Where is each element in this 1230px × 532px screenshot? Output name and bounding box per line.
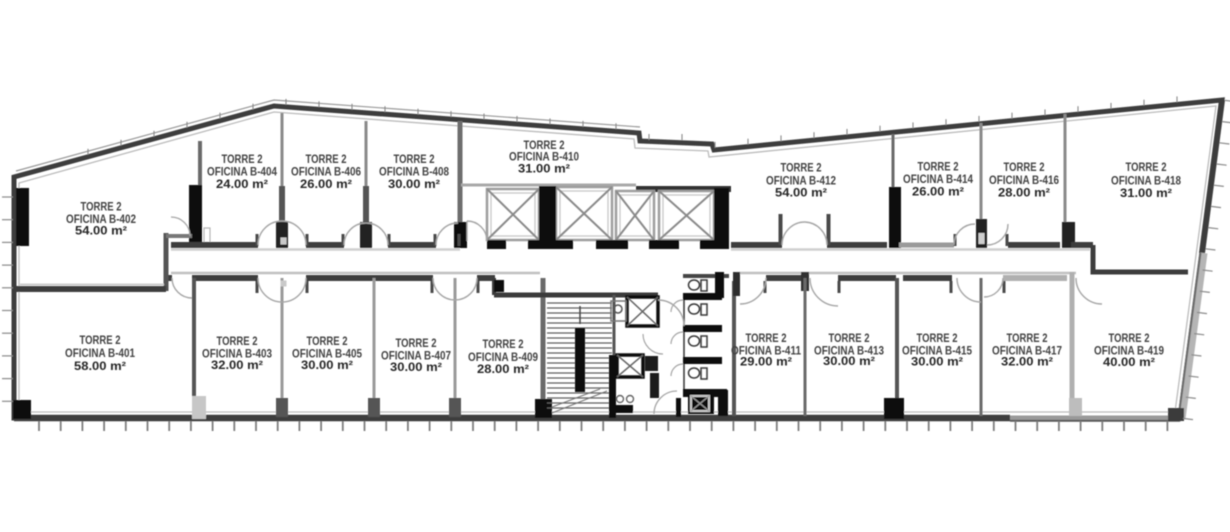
svg-text:31.00 m²: 31.00 m²: [518, 162, 570, 176]
svg-text:30.00 m²: 30.00 m²: [388, 177, 440, 191]
svg-text:30.00 m²: 30.00 m²: [823, 354, 875, 368]
svg-text:24.00 m²: 24.00 m²: [216, 177, 268, 191]
svg-text:32.00 m²: 32.00 m²: [211, 358, 263, 372]
svg-text:32.00 m²: 32.00 m²: [1001, 355, 1053, 369]
svg-text:TORRE 2: TORRE 2: [1126, 160, 1167, 174]
svg-text:26.00 m²: 26.00 m²: [300, 177, 352, 191]
svg-text:28.00 m²: 28.00 m²: [477, 362, 529, 376]
svg-text:TORRE 2: TORRE 2: [781, 161, 822, 175]
svg-text:OFICINA B-401: OFICINA B-401: [65, 346, 135, 360]
svg-text:TORRE 2: TORRE 2: [1004, 160, 1045, 174]
svg-text:30.00 m²: 30.00 m²: [301, 358, 353, 372]
svg-text:28.00 m²: 28.00 m²: [998, 186, 1050, 200]
svg-text:30.00 m²: 30.00 m²: [390, 360, 442, 374]
svg-text:26.00 m²: 26.00 m²: [912, 185, 964, 199]
svg-text:31.00 m²: 31.00 m²: [1120, 186, 1172, 200]
svg-text:54.00 m²: 54.00 m²: [75, 224, 127, 238]
svg-text:TORRE 2: TORRE 2: [80, 333, 121, 347]
svg-text:54.00 m²: 54.00 m²: [775, 186, 827, 200]
svg-text:29.00 m²: 29.00 m²: [740, 355, 792, 369]
svg-text:58.00 m²: 58.00 m²: [74, 359, 126, 373]
svg-text:40.00 m²: 40.00 m²: [1103, 355, 1155, 369]
svg-text:TORRE 2: TORRE 2: [483, 337, 524, 351]
svg-text:30.00 m²: 30.00 m²: [911, 355, 963, 369]
